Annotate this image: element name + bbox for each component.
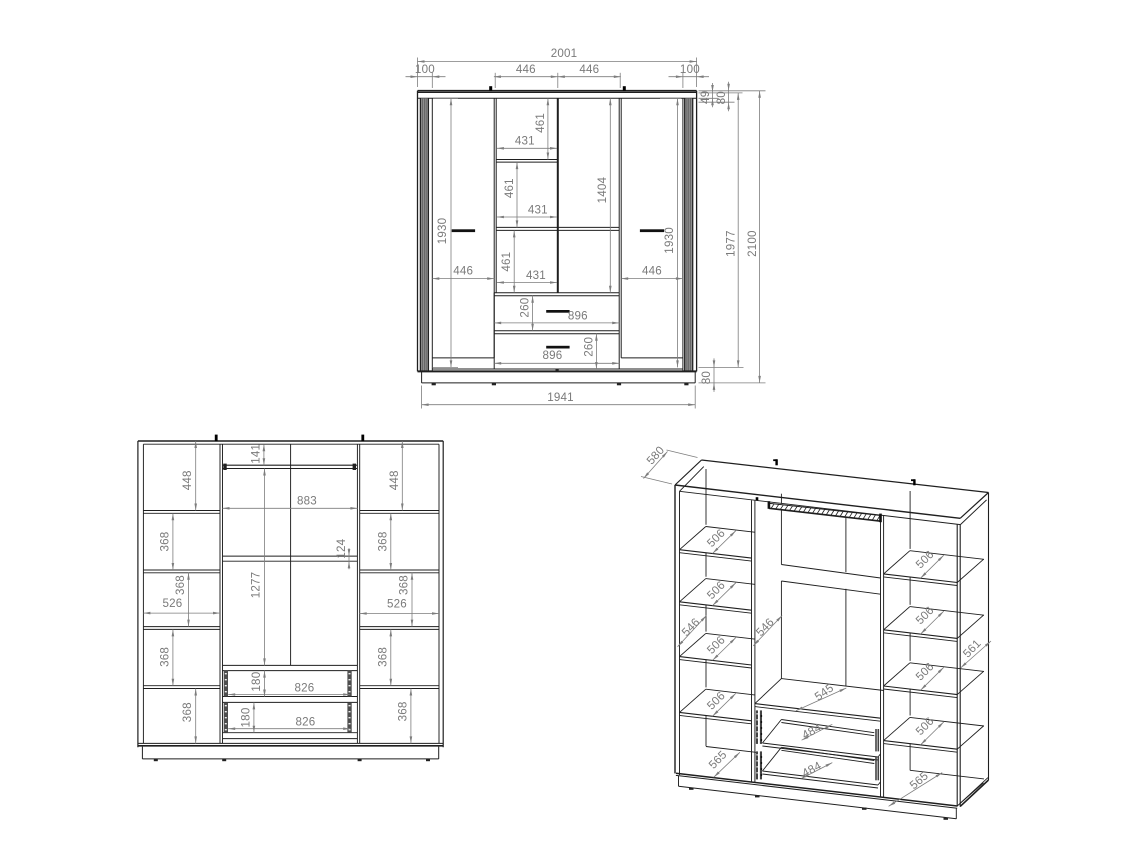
svg-text:1404: 1404 xyxy=(596,176,609,203)
svg-text:368: 368 xyxy=(376,532,389,552)
svg-text:446: 446 xyxy=(453,264,473,277)
svg-text:368: 368 xyxy=(376,647,389,667)
svg-text:526: 526 xyxy=(163,597,183,610)
svg-text:260: 260 xyxy=(582,337,595,357)
svg-text:368: 368 xyxy=(159,647,172,667)
svg-text:368: 368 xyxy=(159,532,172,552)
svg-text:1941: 1941 xyxy=(547,391,574,404)
svg-text:546: 546 xyxy=(754,616,777,639)
svg-text:506: 506 xyxy=(705,689,728,712)
svg-text:826: 826 xyxy=(295,681,315,694)
svg-text:368: 368 xyxy=(181,702,194,722)
svg-text:180: 180 xyxy=(239,708,252,728)
svg-text:883: 883 xyxy=(297,494,317,507)
svg-text:180: 180 xyxy=(250,672,263,692)
svg-text:561: 561 xyxy=(961,637,984,660)
svg-text:580: 580 xyxy=(644,444,667,468)
svg-text:448: 448 xyxy=(181,470,194,490)
svg-text:546: 546 xyxy=(679,616,702,639)
svg-text:141: 141 xyxy=(249,444,262,464)
svg-text:565: 565 xyxy=(706,748,729,771)
svg-text:484: 484 xyxy=(800,721,824,742)
svg-text:461: 461 xyxy=(500,252,513,272)
svg-text:80: 80 xyxy=(715,91,728,104)
svg-text:1977: 1977 xyxy=(725,230,738,257)
svg-text:368: 368 xyxy=(396,701,409,721)
svg-text:431: 431 xyxy=(528,203,548,216)
svg-text:448: 448 xyxy=(388,470,401,490)
svg-text:896: 896 xyxy=(543,349,563,362)
svg-text:506: 506 xyxy=(705,633,728,656)
svg-text:80: 80 xyxy=(700,371,713,384)
svg-text:446: 446 xyxy=(642,264,662,277)
svg-text:368: 368 xyxy=(174,575,187,595)
svg-text:1930: 1930 xyxy=(663,227,676,254)
svg-text:446: 446 xyxy=(516,63,536,76)
svg-text:431: 431 xyxy=(515,135,535,148)
svg-text:49: 49 xyxy=(699,91,712,104)
svg-text:2001: 2001 xyxy=(551,47,578,60)
svg-text:260: 260 xyxy=(519,298,532,318)
svg-text:100: 100 xyxy=(680,63,700,76)
svg-text:506: 506 xyxy=(705,527,728,550)
svg-text:1930: 1930 xyxy=(436,218,449,245)
svg-text:2100: 2100 xyxy=(746,230,759,257)
svg-text:484: 484 xyxy=(800,759,824,780)
svg-text:100: 100 xyxy=(415,63,435,76)
svg-text:506: 506 xyxy=(705,579,728,602)
svg-text:526: 526 xyxy=(387,598,407,611)
svg-text:446: 446 xyxy=(579,63,599,76)
svg-text:896: 896 xyxy=(568,309,588,322)
svg-text:461: 461 xyxy=(503,178,516,198)
svg-text:1277: 1277 xyxy=(250,572,263,599)
svg-text:826: 826 xyxy=(296,715,316,728)
svg-text:431: 431 xyxy=(526,269,546,282)
svg-text:124: 124 xyxy=(335,538,348,558)
svg-text:461: 461 xyxy=(534,113,547,133)
svg-text:368: 368 xyxy=(398,575,411,595)
